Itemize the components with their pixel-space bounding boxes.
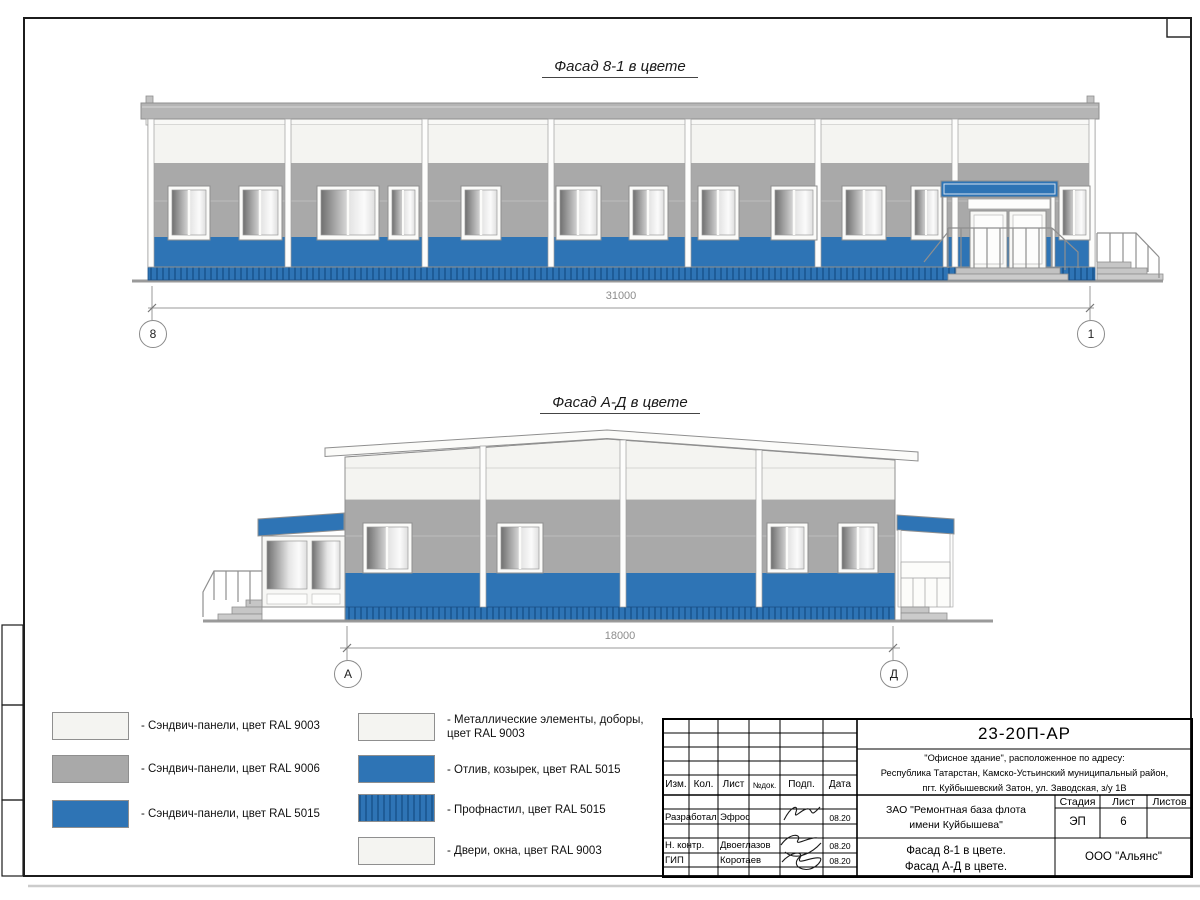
axis-marker-a: А xyxy=(334,660,362,688)
legend-label: - Отлив, козырек, цвет RAL 5015 xyxy=(447,763,652,777)
signer-date: 08.20 xyxy=(823,856,857,866)
facade2-dimension-label: 18000 xyxy=(580,630,660,642)
stage-value: ЭП xyxy=(1055,816,1100,828)
signer-role: ГИП xyxy=(665,855,684,866)
project-address: "Офисное здание", расположенное по адрес… xyxy=(857,751,1192,796)
col-kol: Кол. xyxy=(689,779,718,790)
legend-swatch-sandwich-ral9003 xyxy=(52,712,129,740)
legend-label: - Сэндвич-панели, цвет RAL 9003 xyxy=(141,719,371,733)
col-izm: Изм. xyxy=(663,779,689,790)
col-podp: Подп. xyxy=(780,779,823,790)
sheets-label: Листов xyxy=(1147,796,1192,808)
facade1-entrance xyxy=(924,181,1078,280)
signer-date: 08.20 xyxy=(823,813,857,823)
legend-swatch-doors-ral9003 xyxy=(358,837,435,865)
drawing-sheet: Фасад 8-1 в цвете Фасад А-Д в цвете 3100… xyxy=(0,0,1200,900)
signer-role: Разработал xyxy=(665,812,717,823)
signer-name: Коротаев xyxy=(720,855,761,866)
legend-label: - Двери, окна, цвет RAL 9003 xyxy=(447,844,652,858)
col-data: Дата xyxy=(823,779,857,790)
facade2-title: Фасад А-Д в цвете xyxy=(450,394,790,414)
legend-label: - Сэндвич-панели, цвет RAL 5015 xyxy=(141,807,371,821)
axis-marker-d: Д xyxy=(880,660,908,688)
sheet-number: 6 xyxy=(1100,816,1147,828)
facade2-left-porch xyxy=(203,513,345,620)
legend-label: - Профнастил, цвет RAL 5015 xyxy=(447,803,652,817)
signer-name: Эфрос xyxy=(720,812,750,823)
legend-label: - Металлические элементы, доборы, цвет R… xyxy=(447,713,652,741)
stage-label: Стадия xyxy=(1055,796,1100,808)
legend-swatch-otliv-ral5015 xyxy=(358,755,435,783)
sheet-title: Фасад 8-1 в цвете. Фасад А-Д в цвете. xyxy=(857,843,1055,875)
axis-marker-8: 8 xyxy=(139,320,167,348)
facade-8-1-drawing xyxy=(132,96,1163,320)
legend-label: - Сэндвич-панели, цвет RAL 9006 xyxy=(141,762,371,776)
facade2-right-porch xyxy=(897,515,954,620)
legend-swatch-sandwich-ral9006 xyxy=(52,755,129,783)
legend-swatch-profnastil-ral5015 xyxy=(358,794,435,822)
facade1-title: Фасад 8-1 в цвете xyxy=(450,58,790,78)
legend-swatch-metal-ral9003 xyxy=(358,713,435,741)
axis-marker-1: 1 xyxy=(1077,320,1105,348)
doc-number: 23-20П-АР xyxy=(857,724,1192,744)
signer-date: 08.20 xyxy=(823,841,857,851)
client-name: ЗАО "Ремонтная база флота имени Куйбышев… xyxy=(857,803,1055,833)
company-name: ООО "Альянс" xyxy=(1055,851,1192,863)
col-ndok: №док. xyxy=(749,781,780,790)
facade1-dimension-label: 31000 xyxy=(581,290,661,302)
facade-a-d-drawing xyxy=(203,430,993,660)
sheet-label: Лист xyxy=(1100,796,1147,808)
signer-role: Н. контр. xyxy=(665,840,704,851)
col-list: Лист xyxy=(718,779,749,790)
legend-swatch-sandwich-ral5015 xyxy=(52,800,129,828)
signer-name: Двоеглазов xyxy=(720,840,771,851)
facade1-side-stairs xyxy=(1097,233,1163,280)
